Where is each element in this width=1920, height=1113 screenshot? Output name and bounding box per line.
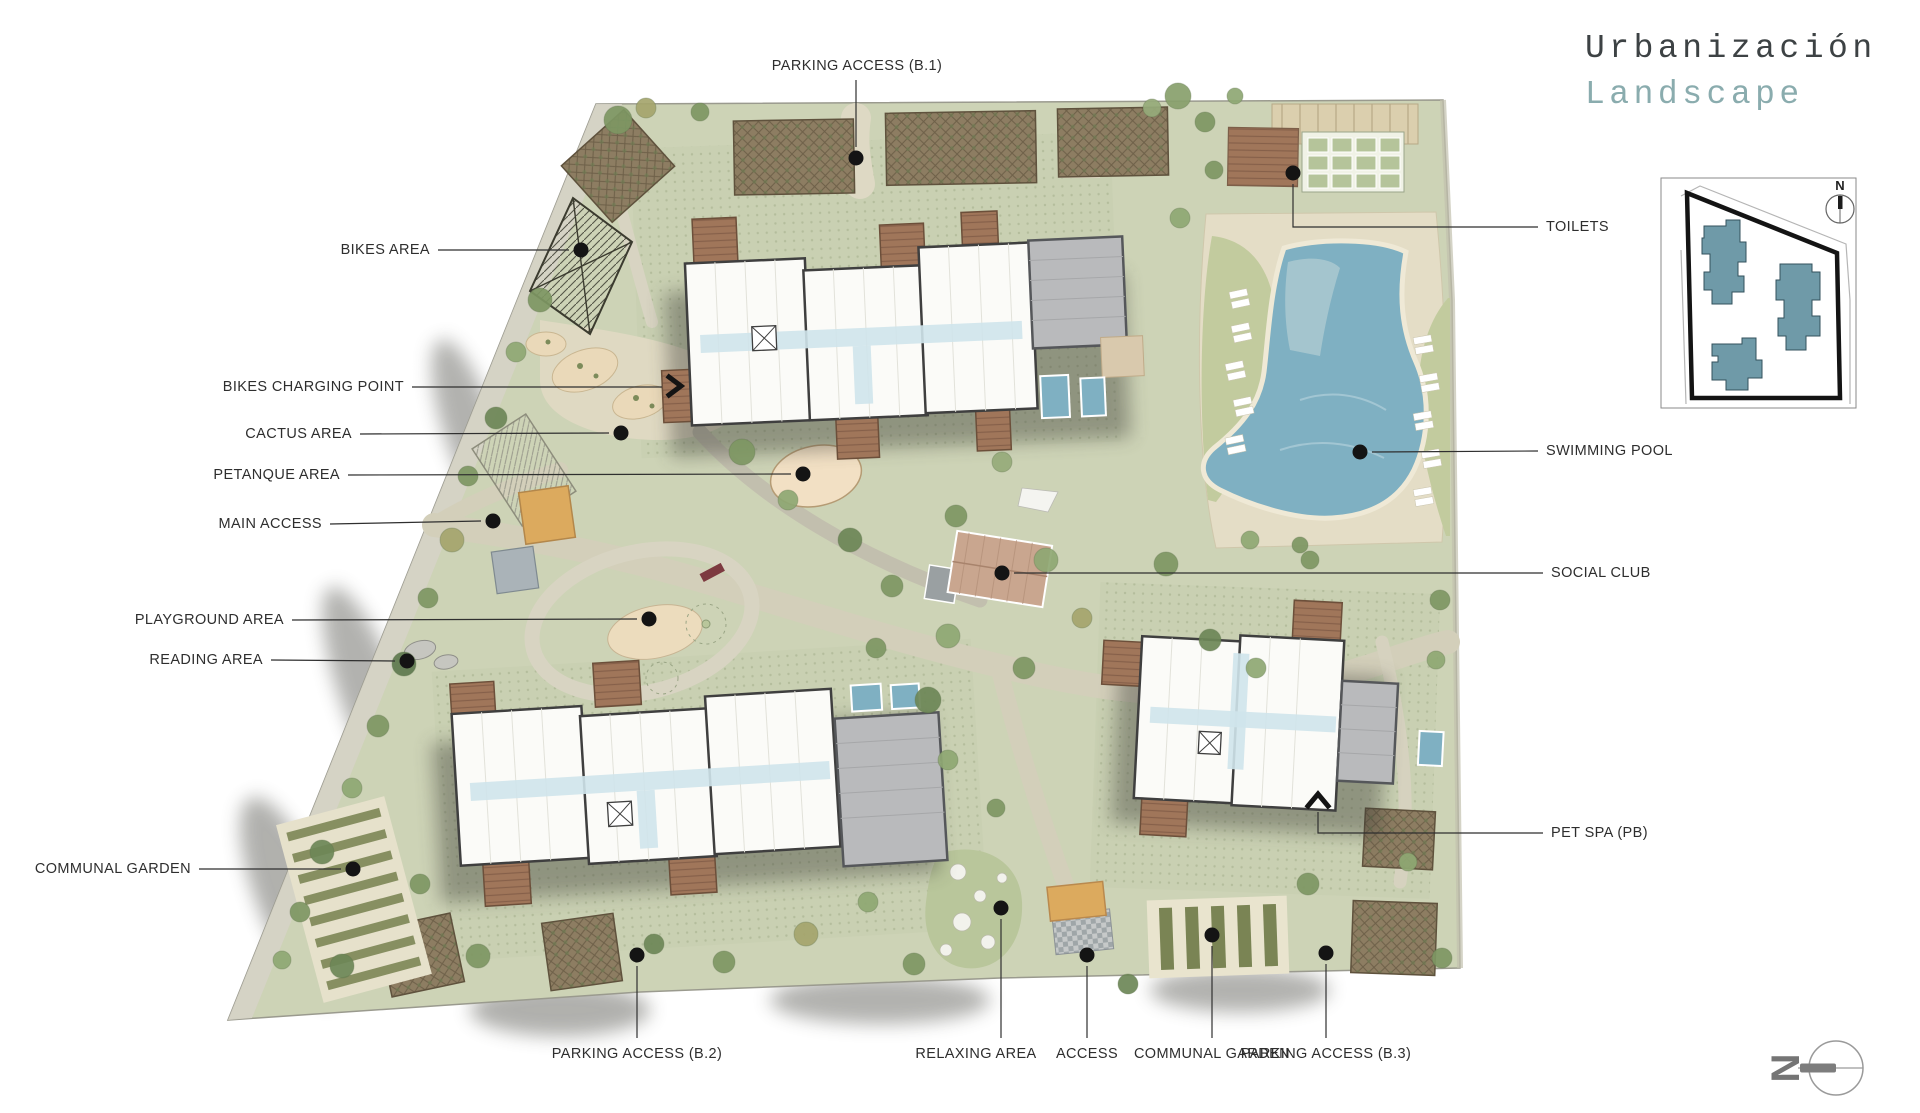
site-plan-map: [0, 0, 1920, 1113]
access-pavilion: [1047, 881, 1114, 955]
page: PARKING ACCESS (B.1)BIKES AREABIKES CHAR…: [0, 0, 1920, 1113]
communal-garden-bottom-shape: [1147, 896, 1290, 979]
drawing-title: Urbanización Landscape: [1585, 30, 1877, 113]
title-line-1: Urbanización: [1585, 30, 1877, 67]
building-b1: [655, 200, 1147, 467]
title-line-2: Landscape: [1585, 76, 1877, 113]
swimming-pool-area: [1199, 212, 1450, 548]
